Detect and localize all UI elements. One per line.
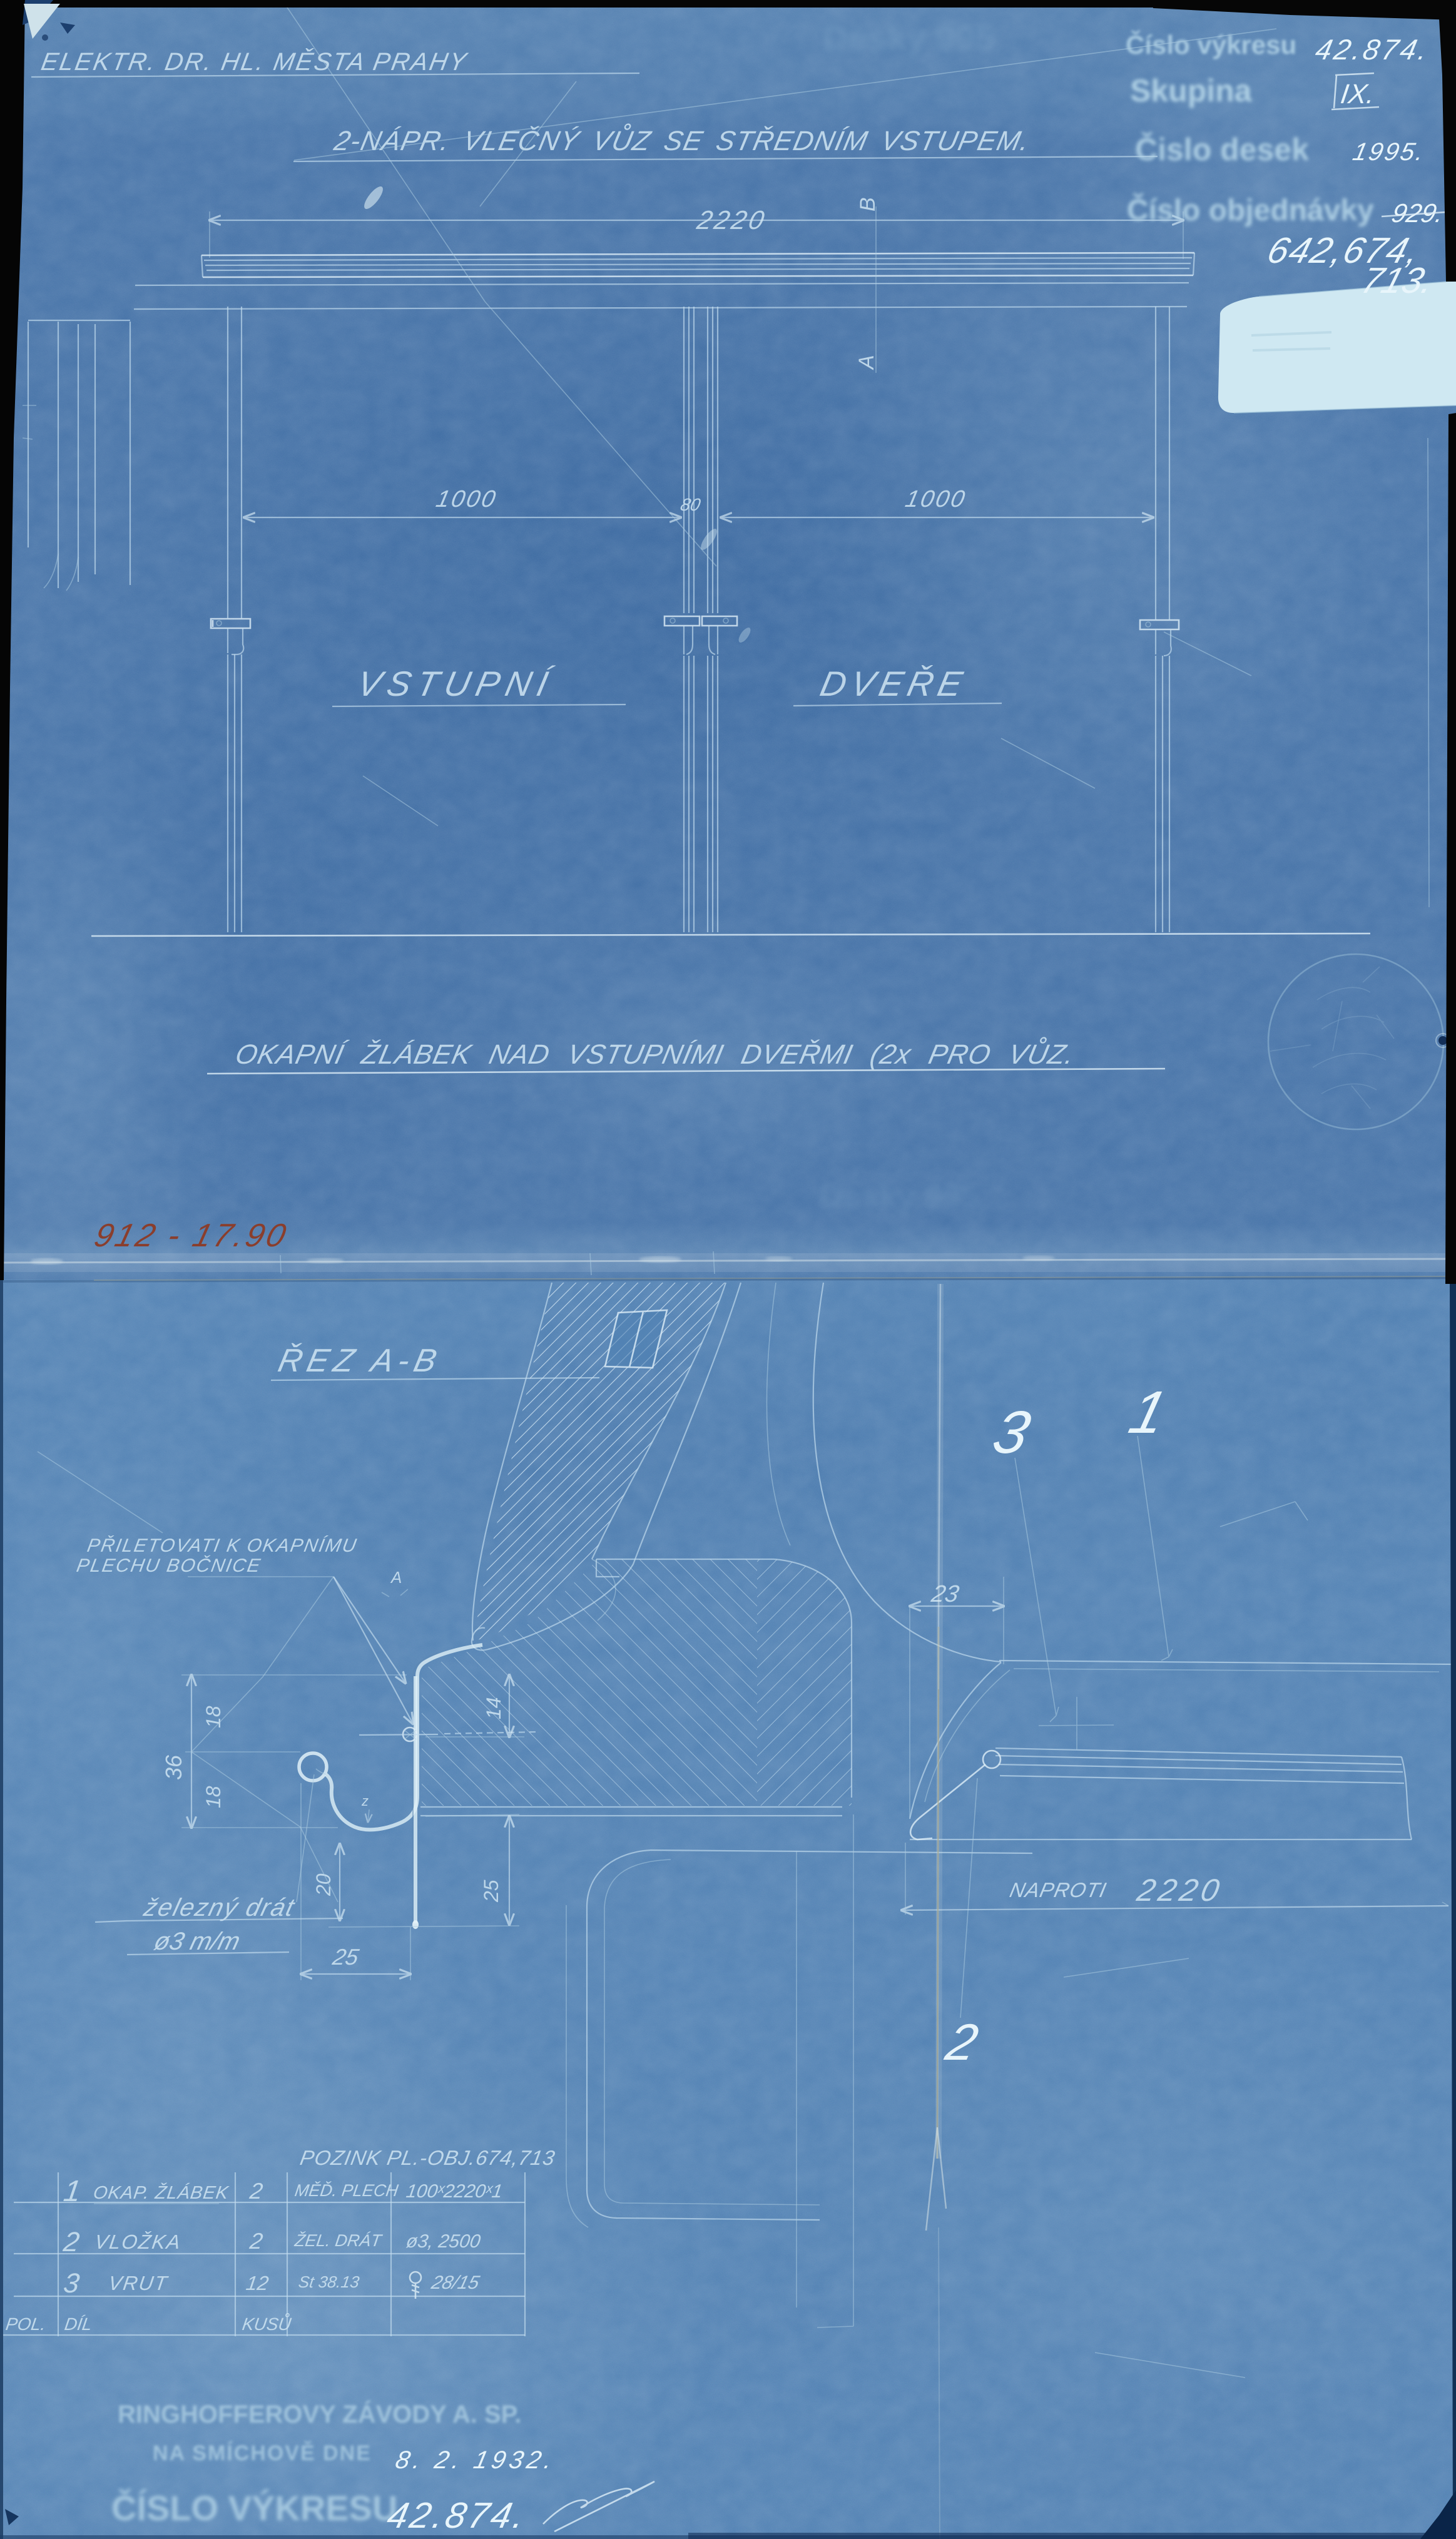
svg-text:18: 18 (202, 1786, 225, 1808)
svg-text:Číslo objednávky: Číslo objednávky (1127, 193, 1374, 227)
svg-text:RINGHOFFEROVY ZÁVODY A. SP.: RINGHOFFEROVY ZÁVODY A. SP. (118, 2400, 521, 2428)
svg-text:IX.: IX. (1339, 79, 1377, 109)
svg-text:Desky 995: Desky 995 (820, 1179, 979, 1215)
svg-text:ŘEZ A-B: ŘEZ A-B (275, 1343, 445, 1379)
svg-text:OKAPNÍ ŽLÁBEK NAD VSTUPNÍMI DV: OKAPNÍ ŽLÁBEK NAD VSTUPNÍMI DVEŘMI (2x P… (233, 1036, 1078, 1069)
svg-text:ø3 m/m: ø3 m/m (151, 1927, 243, 1955)
svg-text:PLECHU BOČNICE: PLECHU BOČNICE (75, 1555, 263, 1576)
svg-text:28/15: 28/15 (429, 2272, 482, 2292)
svg-text:VLOŽKA: VLOŽKA (93, 2231, 183, 2253)
svg-text:NA SMÍCHOVĚ DNE: NA SMÍCHOVĚ DNE (153, 2441, 372, 2465)
svg-text:36: 36 (161, 1754, 186, 1780)
svg-text:1000: 1000 (434, 486, 500, 512)
svg-text:OKAP. ŽLÁBEK: OKAP. ŽLÁBEK (92, 2182, 230, 2203)
svg-text:Číslo výkresu: Číslo výkresu (1126, 29, 1296, 59)
svg-text:St 38.13: St 38.13 (297, 2272, 360, 2291)
svg-text:18: 18 (202, 1706, 225, 1728)
svg-text:8. 2. 1932.: 8. 2. 1932. (393, 2445, 559, 2473)
svg-text:B: B (856, 197, 880, 211)
svg-text:Desky 995: Desky 995 (823, 18, 994, 58)
svg-text:20: 20 (312, 1873, 335, 1896)
svg-text:VSTUPNÍ: VSTUPNÍ (354, 664, 557, 703)
svg-text:1995.: 1995. (1350, 137, 1428, 165)
svg-text:VRUT: VRUT (107, 2272, 170, 2294)
svg-text:PŘILETOVATI K OKAPNÍMU: PŘILETOVATI K OKAPNÍMU (86, 1535, 359, 1556)
svg-text:Čislo desek: Čislo desek (1135, 131, 1309, 167)
svg-text:12: 12 (245, 2272, 270, 2294)
svg-text:912 - 17.90: 912 - 17.90 (91, 1218, 292, 1254)
svg-text:POZINK PL.-OBJ.674,713: POZINK PL.-OBJ.674,713 (298, 2147, 557, 2170)
svg-text:POL.: POL. (4, 2314, 47, 2334)
svg-text:Skupina: Skupina (1130, 73, 1253, 108)
svg-text:713.: 713. (1357, 260, 1439, 301)
svg-text:2-NÁPR. VLEČNÝ VŮZ SE STŘEDNÍM: 2-NÁPR. VLEČNÝ VŮZ SE STŘEDNÍM VSTUPEM. (331, 123, 1034, 156)
svg-text:ŽEL. DRÁT: ŽEL. DRÁT (293, 2231, 384, 2250)
svg-text:2220: 2220 (1134, 1873, 1226, 1908)
svg-text:42.874.: 42.874. (384, 2496, 531, 2536)
svg-text:ČÍSLO VÝKRESU: ČÍSLO VÝKRESU (111, 2488, 397, 2528)
svg-text:2220: 2220 (694, 205, 769, 234)
svg-text:NAPROTI: NAPROTI (1007, 1879, 1108, 1902)
svg-text:42.874.: 42.874. (1313, 33, 1433, 65)
svg-text:1000: 1000 (903, 486, 969, 512)
svg-text:KUSŮ: KUSŮ (241, 2313, 293, 2334)
svg-text:železný drát: železný drát (141, 1893, 298, 1921)
svg-text:MĚĎ. PLECH: MĚĎ. PLECH (293, 2180, 400, 2200)
svg-text:A: A (855, 355, 878, 370)
svg-text:DÍL: DÍL (63, 2314, 93, 2334)
svg-text:z: z (361, 1793, 369, 1809)
svg-text:ELEKTR. DR. HL. MĚSTA PRAHY: ELEKTR. DR. HL. MĚSTA PRAHY (39, 48, 470, 76)
svg-text:25: 25 (480, 1880, 502, 1903)
svg-text:14: 14 (482, 1697, 505, 1719)
svg-text:DVEŘE: DVEŘE (817, 664, 970, 703)
svg-text:100ˣ2220ˣ1: 100ˣ2220ˣ1 (405, 2181, 504, 2202)
svg-text:ø3, 2500: ø3, 2500 (405, 2231, 482, 2252)
svg-text:A: A (390, 1568, 402, 1587)
